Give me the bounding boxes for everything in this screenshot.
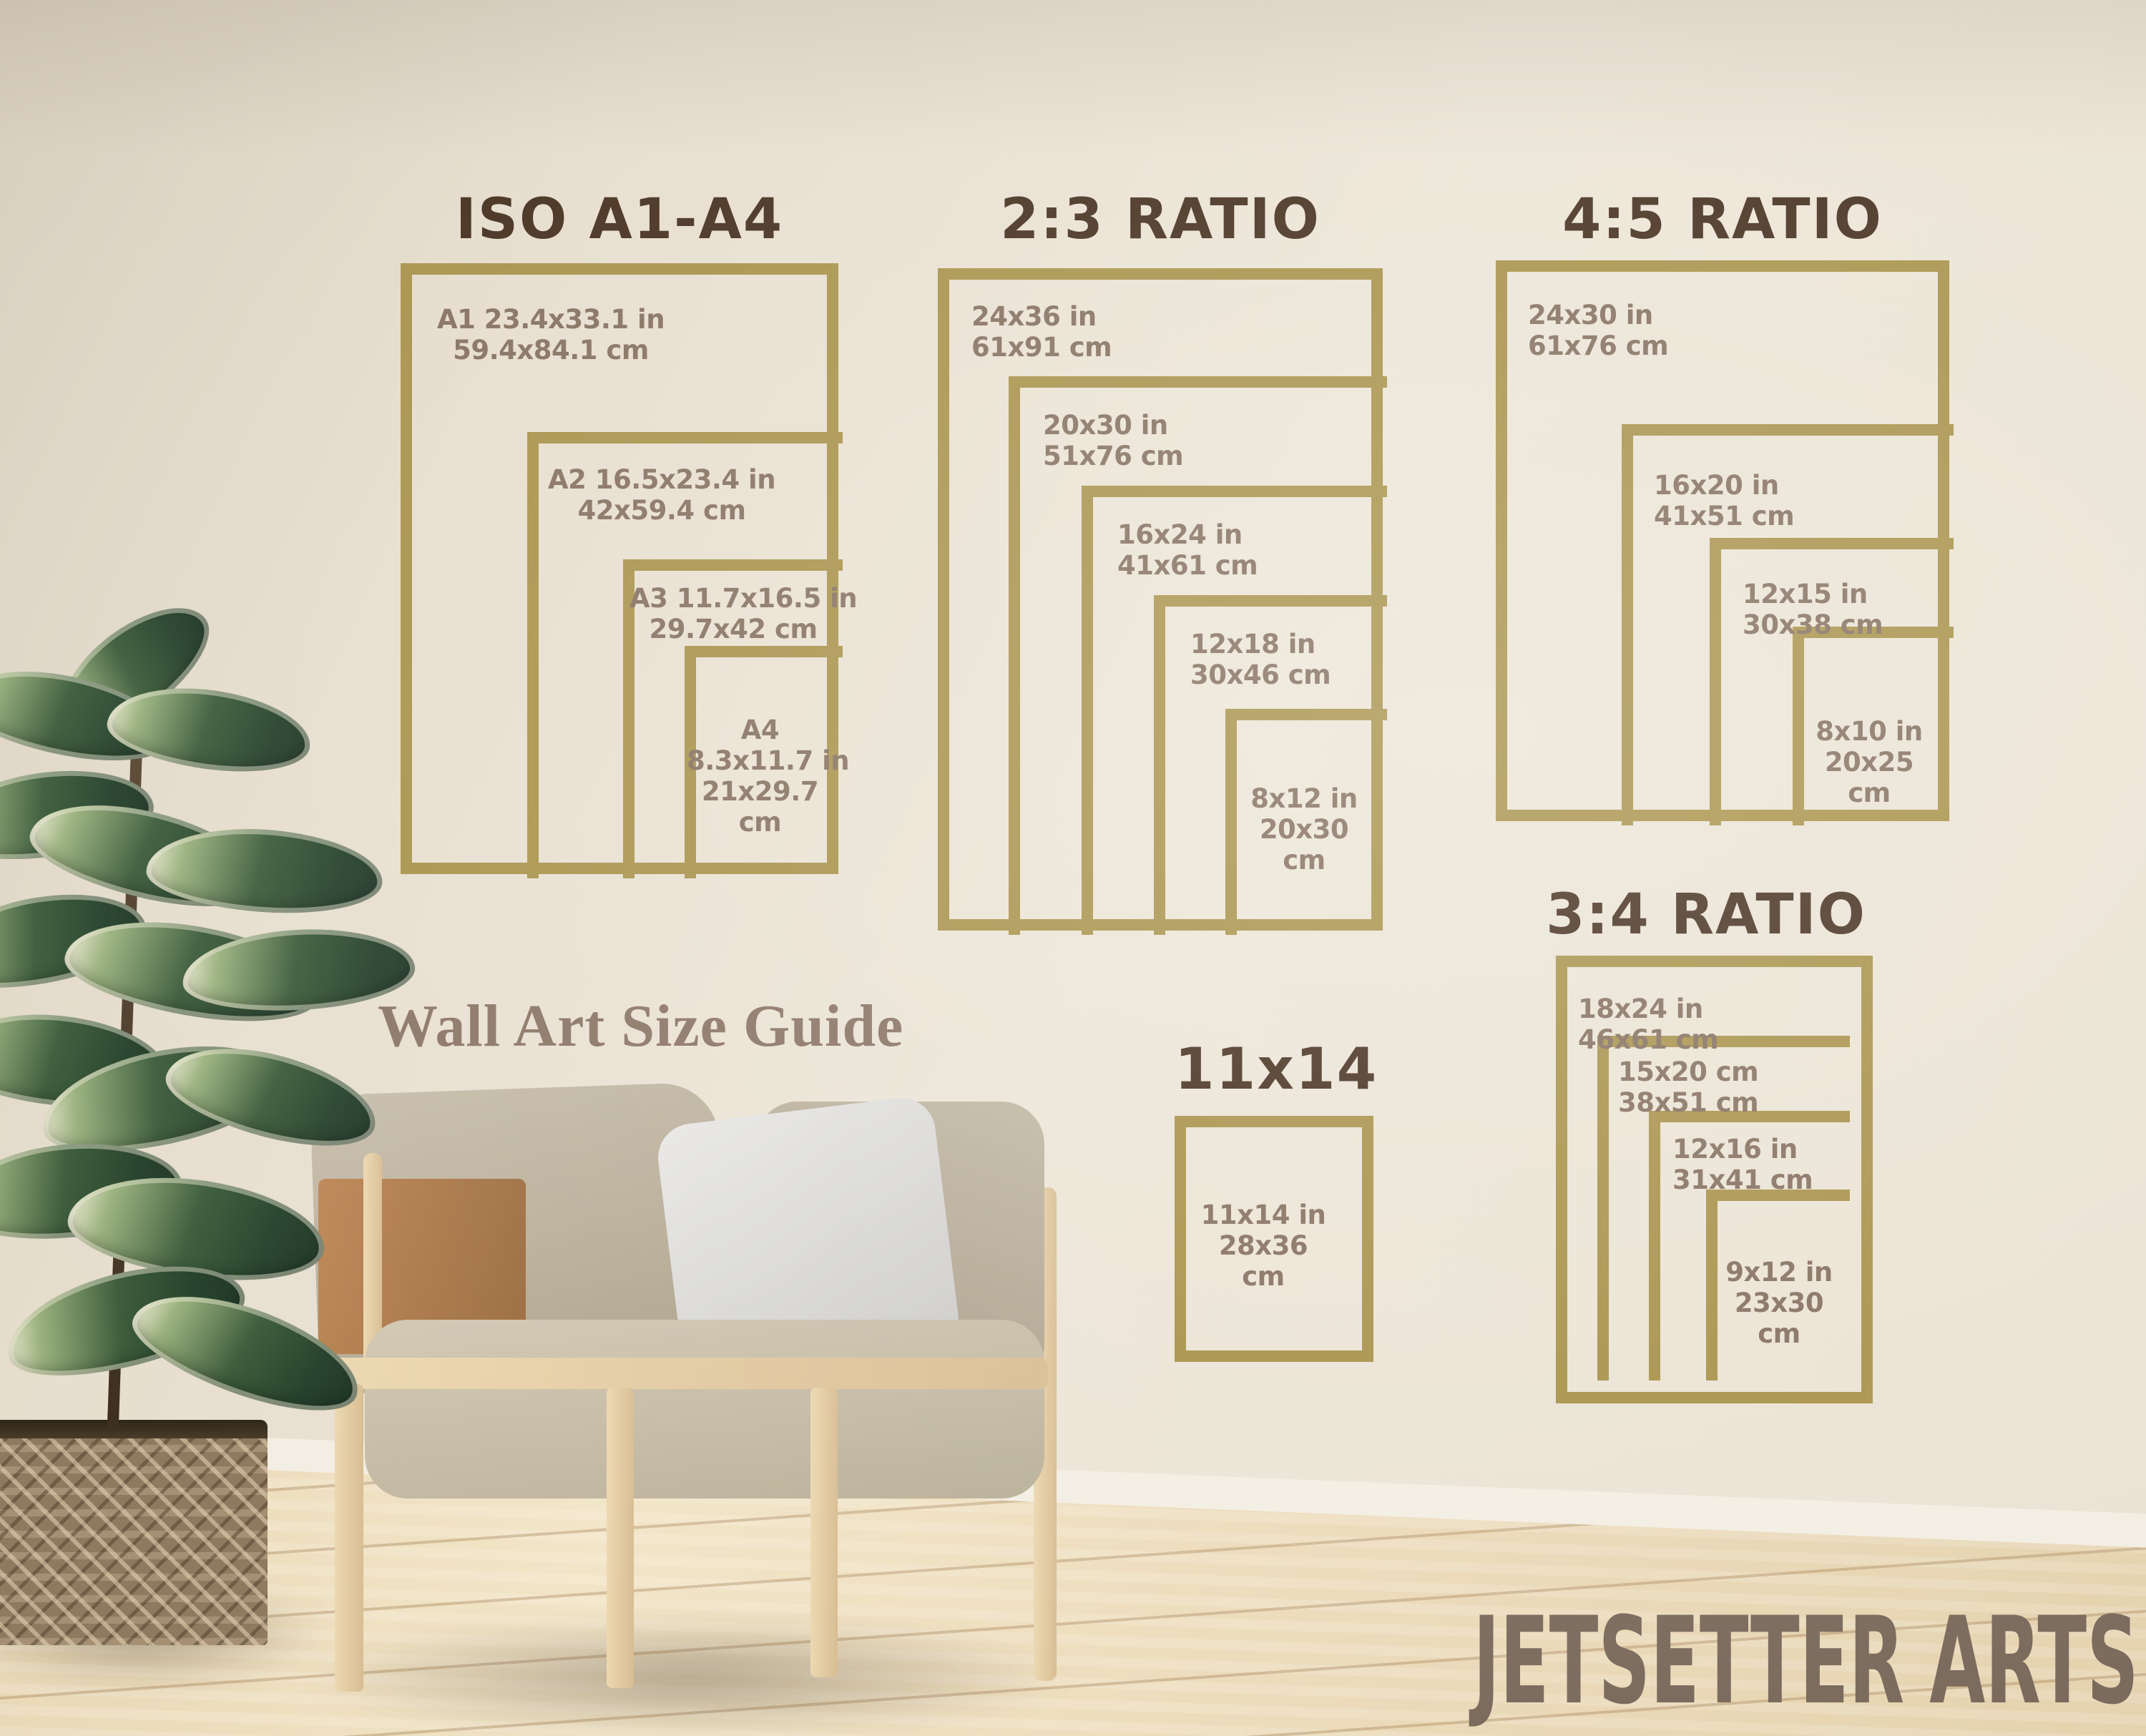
iso-a4-label: A48.3x11.7 in 21x29.7cm [687,715,833,838]
brand-watermark: JETSETTER ARTS [1474,1591,2139,1731]
label-16x20: 16x20 in41x51 cm [1654,471,1794,532]
label-20x30: 20x30 in51x76 cm [1043,411,1183,472]
label-9x12: 9x12 in23x30 cm [1715,1257,1843,1350]
label-18x24: 18x24 in46x61 cm [1578,994,1718,1056]
chair-leg-right [810,1388,838,1677]
label-12x16: 12x16 in31x41 cm [1672,1134,1813,1196]
label-15x20: 15x20 cm38x51 cm [1618,1057,1758,1119]
label-12x15: 12x15 in30x38 cm [1743,579,1883,641]
label-24x36: 24x36 in61x91 cm [971,302,1112,363]
chair-leg-left [335,1384,363,1692]
label-8x10: 8x10 in20x25 cm [1801,717,1937,809]
ratio-4-5-title: 4:5 RATIO [1496,187,1949,252]
label-24x30: 24x30 in61x76 cm [1528,300,1668,362]
chair-seat-cushion [365,1320,1044,1499]
label-8x12: 8x12 in20x30 cm [1235,784,1373,876]
chair-shadow [300,1617,1073,1736]
label-12x18: 12x18 in30x46 cm [1190,629,1331,691]
wall-art-size-guide-poster: ISO A1-A4 A1 23.4x33.1 in59.4x84.1 cm A2… [0,0,2146,1736]
frame-11x14-title: 11x14 [1175,1036,1373,1102]
chair-leg-middle [607,1388,634,1688]
iso-a2-label: A2 16.5x23.4 in42x59.4 cm [547,465,776,526]
chair-rail [325,1358,1048,1389]
iso-a3-label: A3 11.7x16.5 in29.7x42 cm [629,584,837,645]
label-16x24: 16x24 in41x61 cm [1117,520,1258,582]
label-11x14: 11x14 in28x36 cm [1187,1200,1339,1293]
ratio-2-3-title: 2:3 RATIO [938,187,1383,252]
iso-group-title: ISO A1-A4 [401,187,838,252]
poster-caption: Wall Art Size Guide [378,991,903,1061]
iso-a1-label: A1 23.4x33.1 in59.4x84.1 cm [433,305,669,366]
ratio-3-4-title: 3:4 RATIO [1542,883,1871,947]
woven-basket [0,1420,268,1645]
